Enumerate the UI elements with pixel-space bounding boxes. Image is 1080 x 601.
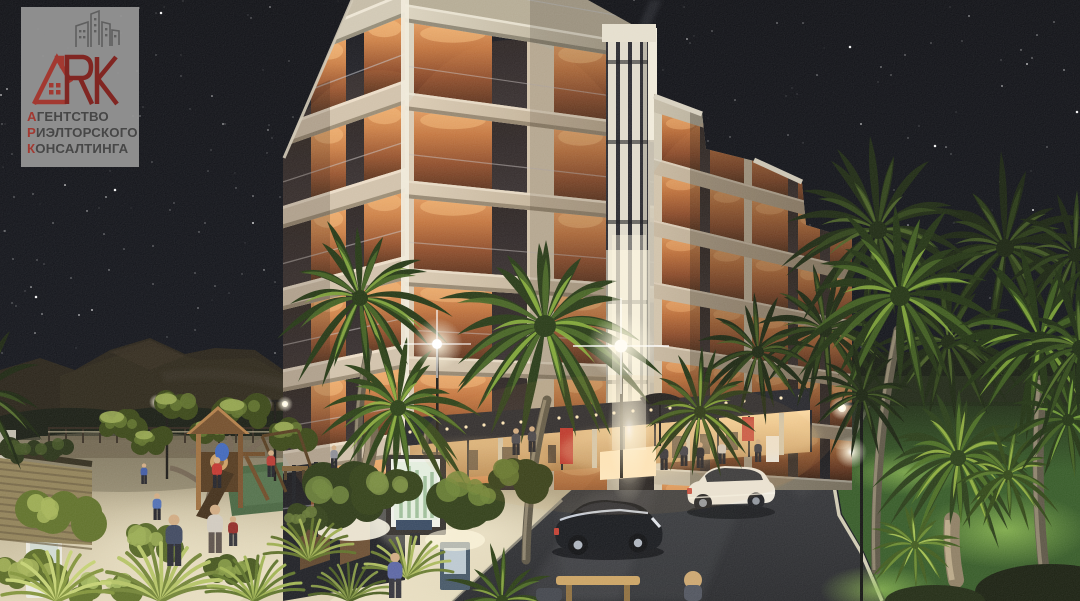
svg-text:КОНСАЛТИНГА: КОНСАЛТИНГА <box>27 141 129 156</box>
svg-text:АГЕНТСТВО: АГЕНТСТВО <box>27 109 109 124</box>
svg-text:РИЭЛТОРСКОГО: РИЭЛТОРСКОГО <box>27 125 138 140</box>
